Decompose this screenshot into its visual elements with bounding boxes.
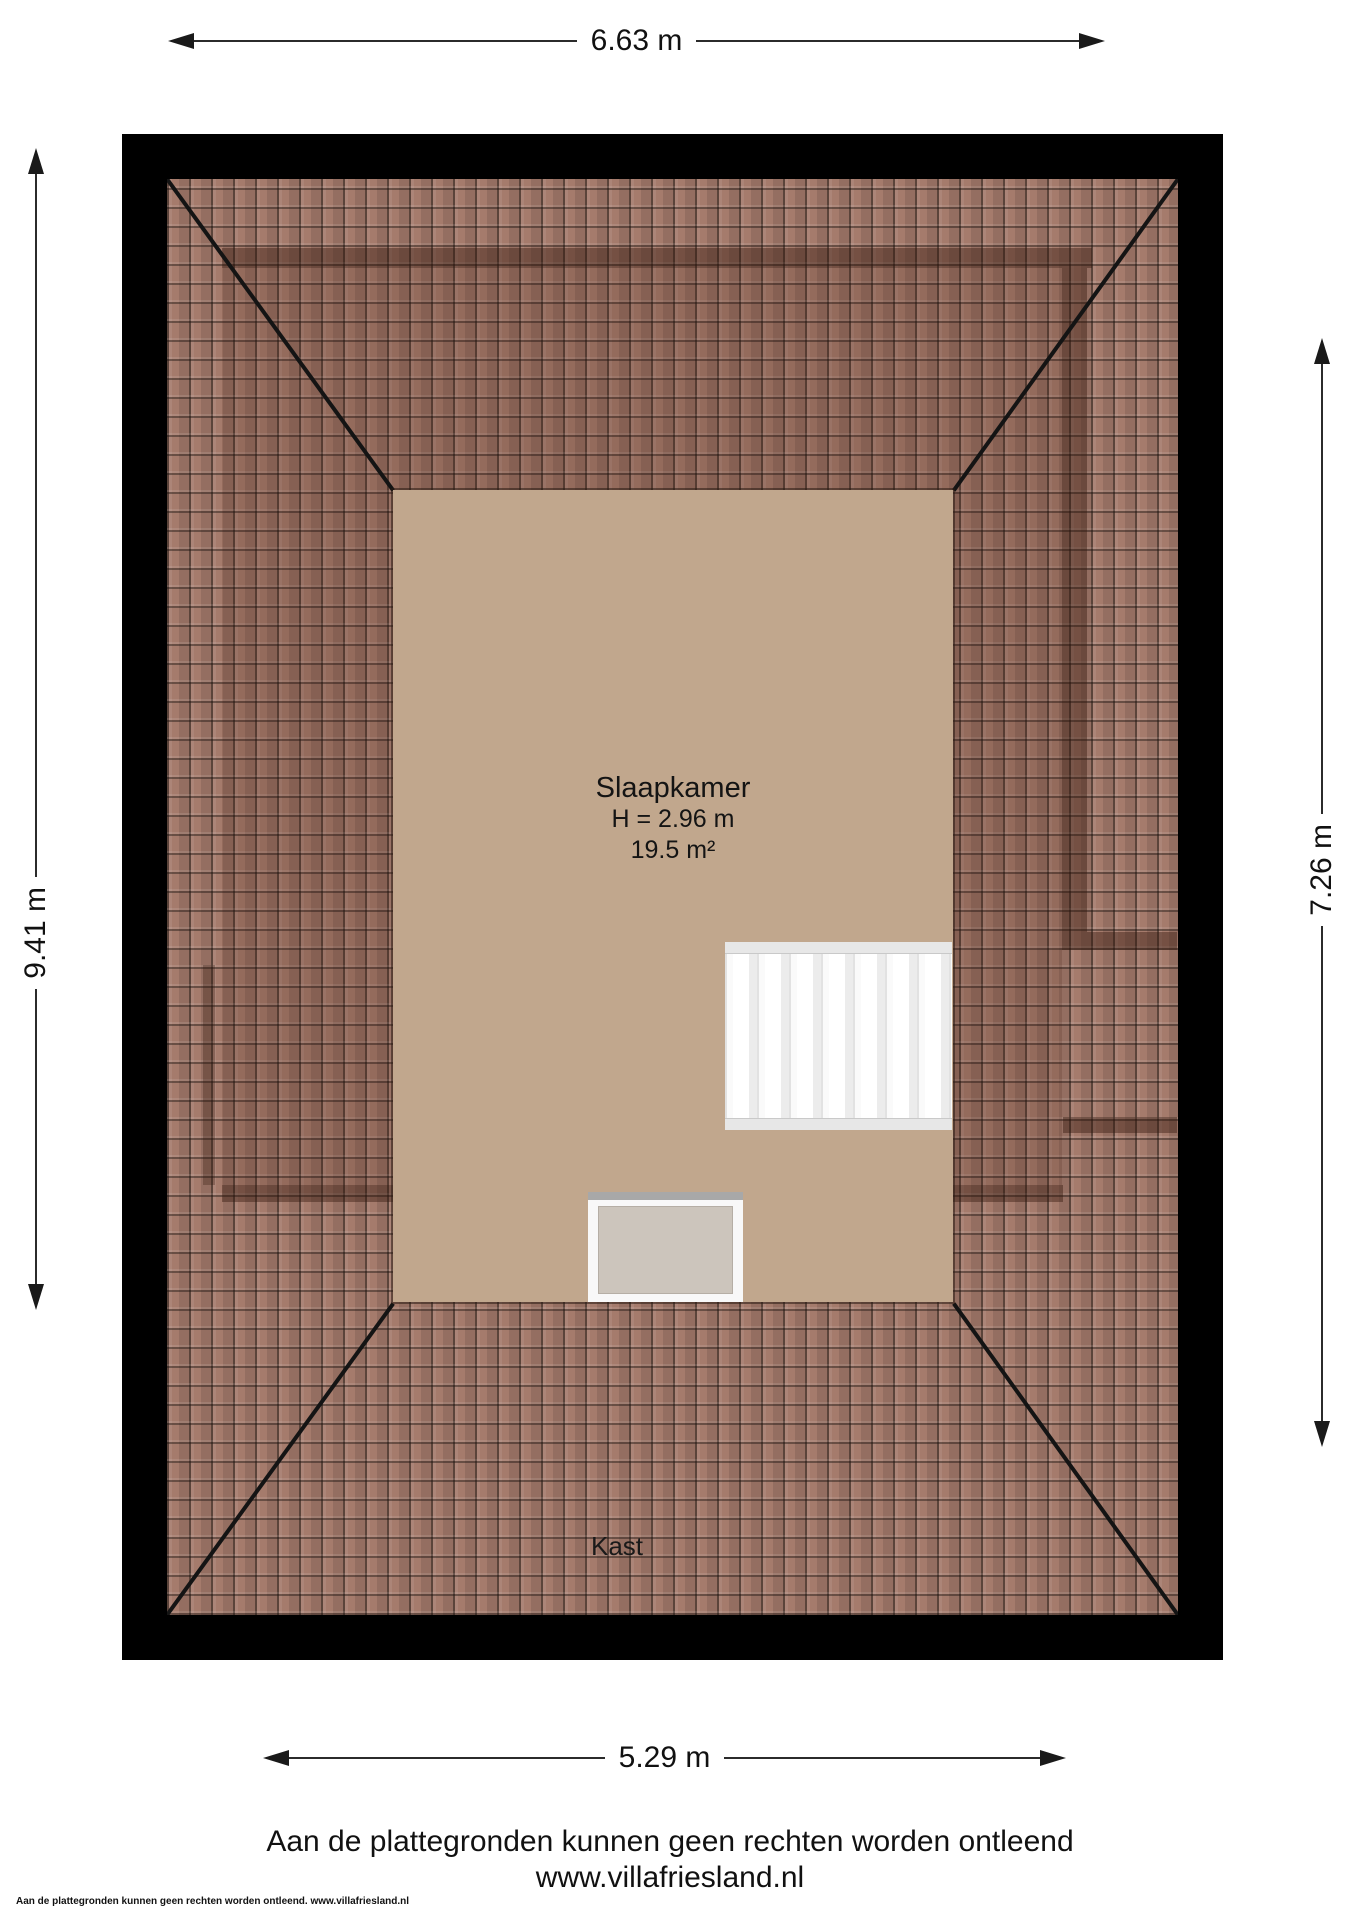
roof-tiles: Slaapkamer H = 2.96 m 19.5 m² (167, 179, 1178, 1615)
dimension-left: 9.41 m (28, 148, 44, 1310)
stair-treads (725, 954, 952, 1118)
room-area-label: 19.5 m² (393, 835, 953, 866)
dimension-bottom: 5.29 m (263, 1739, 1066, 1777)
arrowhead-left-icon (263, 1750, 289, 1766)
dimension-top: 6.63 m (168, 22, 1105, 60)
arrowhead-down-icon (28, 1284, 44, 1310)
footer-disclaimer: Aan de plattegronden kunnen geen rechten… (0, 1824, 1340, 1860)
dimension-line (35, 174, 37, 877)
footer: Aan de plattegronden kunnen geen rechten… (0, 1824, 1340, 1896)
floorplan-frame: Slaapkamer H = 2.96 m 19.5 m² (122, 134, 1223, 1660)
dimension-right: 7.26 m (1314, 338, 1330, 1447)
arrowhead-up-icon (1314, 338, 1330, 364)
dimension-right-label: 7.26 m (1305, 814, 1339, 926)
staircase (725, 942, 952, 1130)
skylight-glass (598, 1206, 733, 1294)
stair-landing-edge (725, 1118, 952, 1130)
arrowhead-right-icon (1040, 1750, 1066, 1766)
footer-website: www.villafriesland.nl (0, 1860, 1340, 1896)
dimension-bottom-label: 5.29 m (605, 1741, 725, 1775)
arrowhead-left-icon (168, 33, 194, 49)
room-height-label: H = 2.96 m (393, 804, 953, 835)
dimension-line (35, 989, 37, 1284)
floorplan-page: 6.63 m 9.41 m 7.26 m 5.29 m (0, 0, 1358, 1920)
skylight (588, 1192, 743, 1302)
dimension-line (289, 1757, 605, 1759)
dimension-line (724, 1757, 1040, 1759)
room-name-label: Slaapkamer (393, 773, 953, 804)
stair-landing-edge (725, 942, 952, 954)
fine-print: Aan de plattegronden kunnen geen rechten… (16, 1896, 409, 1907)
arrowhead-right-icon (1079, 33, 1105, 49)
bedroom-floor: Slaapkamer H = 2.96 m 19.5 m² (393, 490, 953, 1302)
skylight-top-bar (588, 1192, 743, 1200)
dimension-line (1321, 926, 1323, 1421)
dimension-line (1321, 364, 1323, 814)
dimension-line (194, 40, 577, 42)
dimension-line (696, 40, 1079, 42)
arrowhead-down-icon (1314, 1421, 1330, 1447)
closet-label: Kast (517, 1531, 717, 1562)
arrowhead-up-icon (28, 148, 44, 174)
dimension-left-label: 9.41 m (19, 877, 53, 989)
dimension-top-label: 6.63 m (577, 24, 697, 58)
room-label-block: Slaapkamer H = 2.96 m 19.5 m² (393, 773, 953, 866)
